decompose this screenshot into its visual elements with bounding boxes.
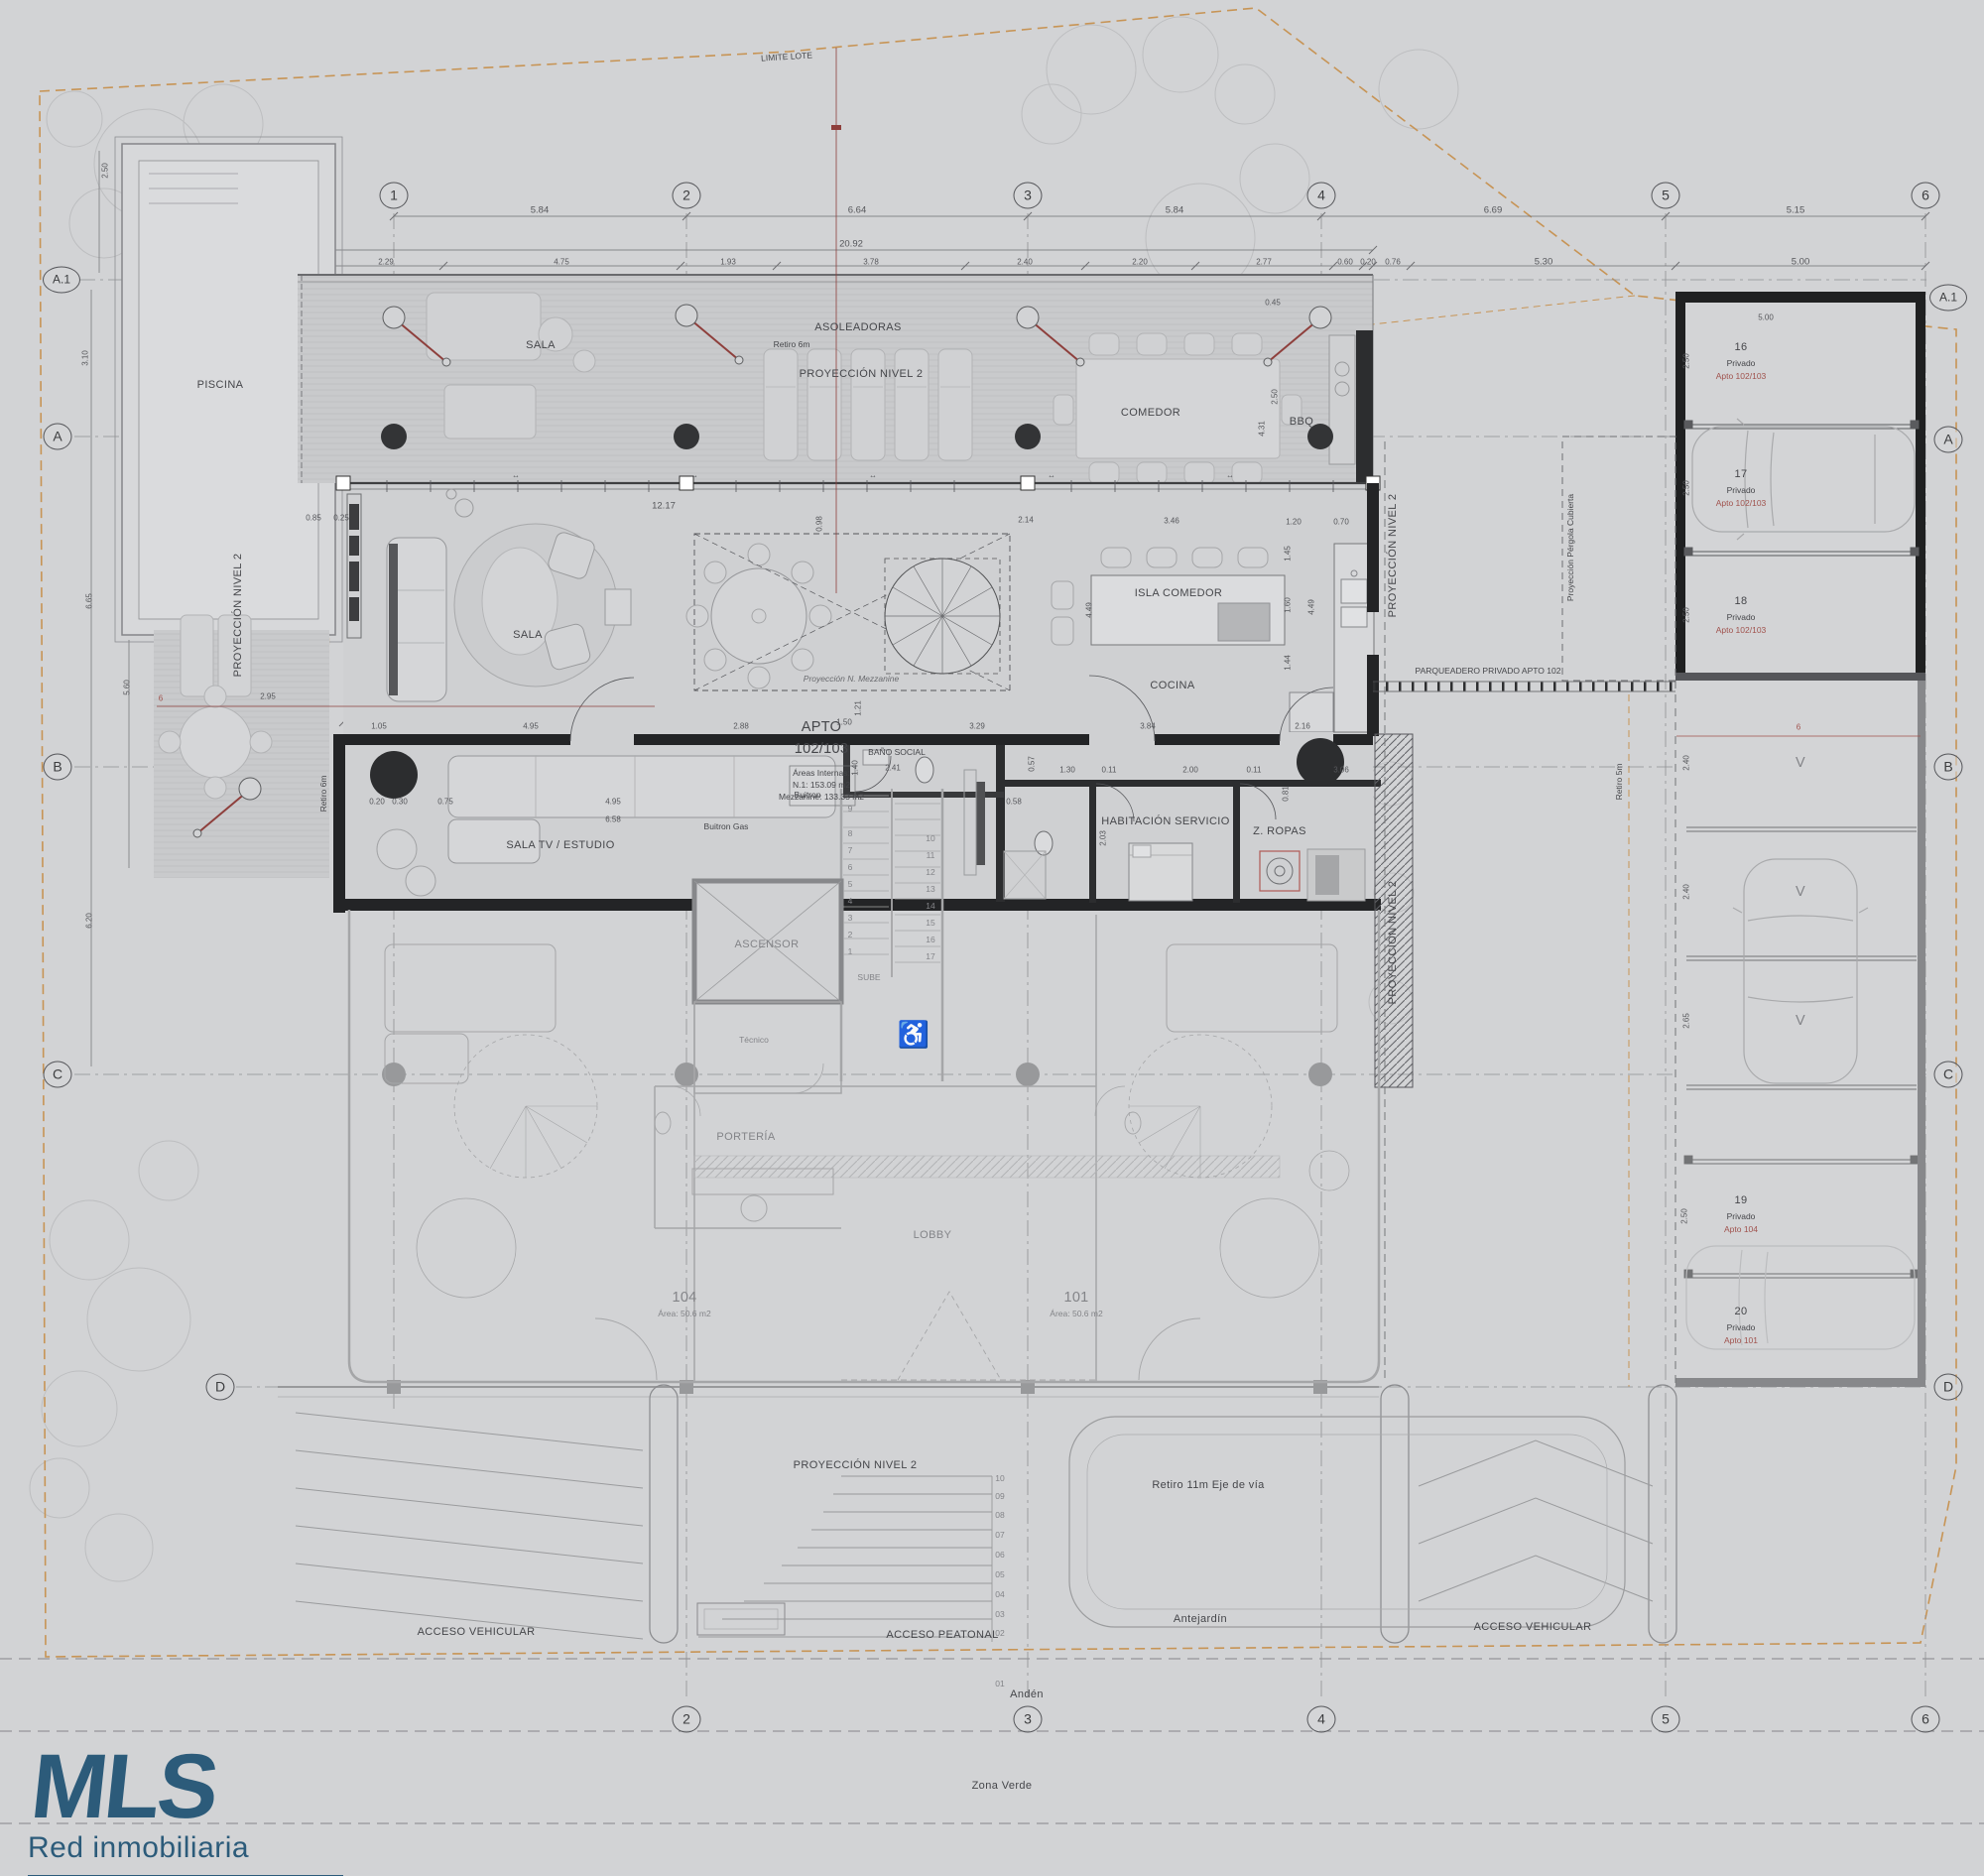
grid-bubble: A.1	[1929, 285, 1967, 312]
grid-bubble: D	[1934, 1374, 1963, 1401]
grid-bubble: 1	[380, 183, 409, 209]
grid-bubble: 4	[1307, 183, 1336, 209]
grid-bubble: B	[1934, 754, 1963, 781]
grid-bubble: 5	[1652, 1706, 1680, 1733]
site-plan-page: LIMITE LOTESALAASOLEADORASRetiro 6mPROYE…	[0, 0, 1984, 1876]
grid-bubble: 3	[1014, 183, 1043, 209]
grid-bubble: A	[44, 424, 72, 450]
grid-bubble: C	[1934, 1062, 1963, 1088]
grid-bubble: 6	[1912, 1706, 1940, 1733]
grid-bubble: 3	[1014, 1706, 1043, 1733]
grid-bubble: 5	[1652, 183, 1680, 209]
grid-bubble: A	[1934, 427, 1963, 453]
grid-bubble: 2	[673, 1706, 701, 1733]
grid-bubble: 4	[1307, 1706, 1336, 1733]
grid-bubble: 6	[1912, 183, 1940, 209]
grid-bubble: 2	[673, 183, 701, 209]
mls-logo-text: MLS	[28, 1748, 351, 1825]
mls-logo: MLS Red inmobiliaria	[28, 1748, 343, 1876]
grid-bubble: B	[44, 754, 72, 781]
grid-bubbles-layer: 12345623456A.1ABCDA.1ABCD	[0, 0, 1984, 1876]
grid-bubble: C	[44, 1062, 72, 1088]
grid-bubble: D	[206, 1374, 235, 1401]
grid-bubble: A.1	[43, 267, 80, 294]
